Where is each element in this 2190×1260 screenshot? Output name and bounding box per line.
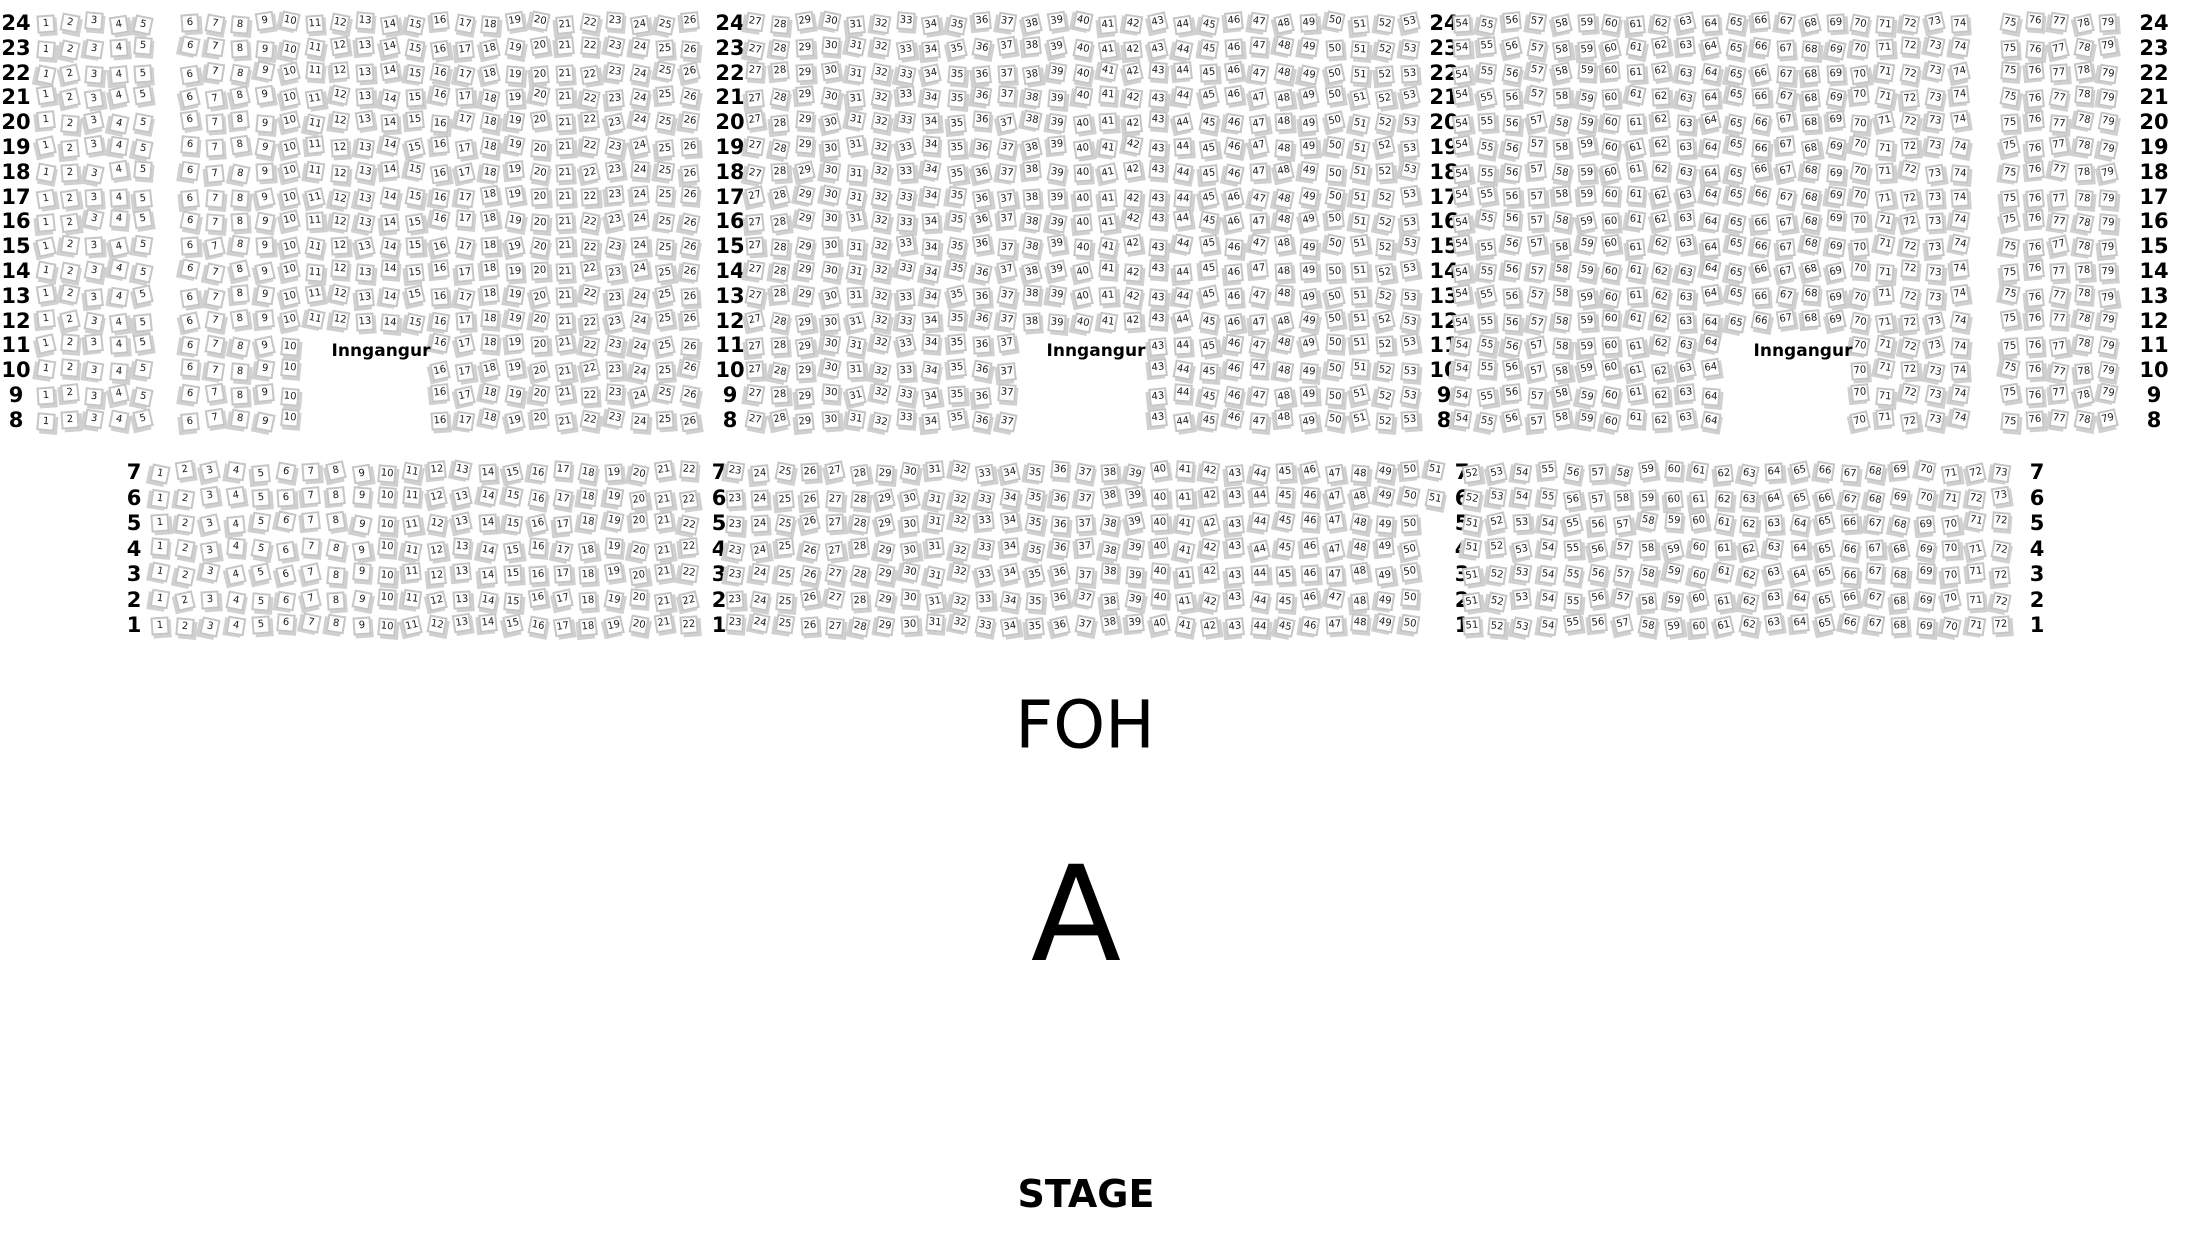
seat[interactable]: 54 xyxy=(1538,514,1559,535)
seat[interactable]: 8 xyxy=(230,386,249,405)
seat[interactable]: 29 xyxy=(795,412,815,432)
seat[interactable]: 63 xyxy=(1738,463,1759,484)
seat[interactable]: 52 xyxy=(1375,335,1394,354)
seat[interactable]: 34 xyxy=(921,212,940,231)
seat[interactable]: 41 xyxy=(1175,460,1195,480)
seat[interactable]: 37 xyxy=(997,163,1018,184)
seat[interactable]: 64 xyxy=(1701,88,1720,107)
seat[interactable]: 77 xyxy=(2048,361,2069,382)
seat[interactable]: 16 xyxy=(528,537,548,557)
seat[interactable]: 11 xyxy=(305,135,325,155)
seat[interactable]: 10 xyxy=(279,87,301,109)
seat[interactable]: 18 xyxy=(479,38,501,60)
seat[interactable]: 38 xyxy=(1022,212,1043,233)
seat[interactable]: 71 xyxy=(1875,189,1896,210)
seat[interactable]: 61 xyxy=(1626,210,1647,231)
seat[interactable]: 48 xyxy=(1274,139,1294,159)
seat[interactable]: 35 xyxy=(1025,617,1045,637)
seat[interactable]: 10 xyxy=(377,566,397,586)
seat[interactable]: 38 xyxy=(1022,36,1042,56)
seat[interactable]: 61 xyxy=(1625,308,1646,329)
seat[interactable]: 29 xyxy=(795,38,814,57)
seat[interactable]: 50 xyxy=(1324,409,1345,430)
seat[interactable]: 77 xyxy=(2049,114,2069,134)
seat[interactable]: 62 xyxy=(1651,160,1671,180)
seat[interactable]: 32 xyxy=(949,591,970,612)
seat[interactable]: 37 xyxy=(996,137,1017,158)
seat[interactable]: 62 xyxy=(1651,334,1672,355)
seat[interactable]: 34 xyxy=(921,311,940,330)
seat[interactable]: 60 xyxy=(1600,261,1621,282)
seat[interactable]: 63 xyxy=(1764,588,1784,608)
seat[interactable]: 29 xyxy=(795,63,814,82)
seat[interactable]: 48 xyxy=(1273,62,1294,83)
seat[interactable]: 26 xyxy=(680,309,700,329)
seat[interactable]: 14 xyxy=(379,88,400,109)
seat[interactable]: 23 xyxy=(725,489,744,508)
seat[interactable]: 71 xyxy=(1966,591,1985,610)
seat[interactable]: 79 xyxy=(2098,64,2119,85)
seat[interactable]: 5 xyxy=(132,138,153,159)
seat[interactable]: 60 xyxy=(1689,511,1710,532)
seat[interactable]: 41 xyxy=(1174,540,1195,561)
seat[interactable]: 55 xyxy=(1477,36,1497,56)
seat[interactable]: 62 xyxy=(1651,87,1670,106)
seat[interactable]: 18 xyxy=(479,382,500,403)
seat[interactable]: 13 xyxy=(452,562,472,582)
seat[interactable]: 35 xyxy=(946,236,967,257)
seat[interactable]: 58 xyxy=(1552,185,1572,205)
seat[interactable]: 3 xyxy=(83,311,104,332)
seat[interactable]: 4 xyxy=(226,616,247,637)
seat[interactable]: 33 xyxy=(896,11,916,31)
seat[interactable]: 69 xyxy=(1826,288,1847,309)
seat[interactable]: 32 xyxy=(949,510,970,531)
seat[interactable]: 37 xyxy=(996,285,1017,306)
seat[interactable]: 71 xyxy=(1874,210,1895,231)
seat[interactable]: 56 xyxy=(1502,88,1521,107)
seat[interactable]: 40 xyxy=(1072,261,1094,283)
seat[interactable]: 26 xyxy=(679,357,700,378)
seat[interactable]: 57 xyxy=(1588,463,1607,482)
seat[interactable]: 14 xyxy=(379,236,400,257)
seat[interactable]: 7 xyxy=(205,164,225,184)
seat[interactable]: 41 xyxy=(1175,488,1194,507)
seat[interactable]: 55 xyxy=(1476,137,1497,158)
seat[interactable]: 74 xyxy=(1950,85,1970,105)
seat[interactable]: 24 xyxy=(629,310,650,331)
seat[interactable]: 28 xyxy=(770,262,791,283)
seat[interactable]: 74 xyxy=(1950,14,1969,33)
seat[interactable]: 28 xyxy=(849,564,870,585)
seat[interactable]: 43 xyxy=(1225,617,1245,637)
seat[interactable]: 9 xyxy=(352,541,373,562)
seat[interactable]: 2 xyxy=(60,189,81,210)
seat[interactable]: 15 xyxy=(503,564,522,583)
seat[interactable]: 49 xyxy=(1299,161,1320,182)
seat[interactable]: 31 xyxy=(845,35,866,56)
seat[interactable]: 19 xyxy=(505,88,524,107)
seat[interactable]: 47 xyxy=(1325,565,1344,584)
seat[interactable]: 30 xyxy=(820,286,842,308)
seat[interactable]: 17 xyxy=(553,564,572,583)
seat[interactable]: 39 xyxy=(1046,162,1067,183)
seat[interactable]: 21 xyxy=(555,163,574,182)
seat[interactable]: 22 xyxy=(580,110,600,130)
seat[interactable]: 15 xyxy=(502,485,523,506)
seat[interactable]: 37 xyxy=(996,112,1018,134)
seat[interactable]: 25 xyxy=(775,614,796,635)
seat[interactable]: 78 xyxy=(2074,85,2094,105)
seat[interactable]: 42 xyxy=(1123,263,1143,283)
seat[interactable]: 58 xyxy=(1552,260,1573,281)
seat[interactable]: 7 xyxy=(204,236,226,258)
seat[interactable]: 8 xyxy=(230,284,250,304)
seat[interactable]: 53 xyxy=(1399,311,1420,332)
seat[interactable]: 27 xyxy=(745,213,765,233)
seat[interactable]: 16 xyxy=(430,135,450,155)
seat[interactable]: 38 xyxy=(1100,562,1120,582)
seat[interactable]: 26 xyxy=(680,287,699,306)
seat[interactable]: 6 xyxy=(276,488,295,507)
seat[interactable]: 61 xyxy=(1625,360,1647,382)
seat[interactable]: 12 xyxy=(329,84,350,105)
seat[interactable]: 11 xyxy=(305,284,326,305)
seat[interactable]: 8 xyxy=(230,39,249,58)
seat[interactable]: 1 xyxy=(150,616,169,635)
seat[interactable]: 39 xyxy=(1047,188,1066,207)
seat[interactable]: 33 xyxy=(895,333,917,355)
seat[interactable]: 61 xyxy=(1626,383,1647,404)
seat[interactable]: 46 xyxy=(1300,486,1320,506)
seat[interactable]: 3 xyxy=(84,11,104,31)
seat[interactable]: 47 xyxy=(1249,386,1270,407)
seat[interactable]: 37 xyxy=(997,85,1017,105)
seat[interactable]: 20 xyxy=(530,261,549,280)
seat[interactable]: 25 xyxy=(655,139,675,159)
seat[interactable]: 76 xyxy=(2025,209,2045,229)
seat[interactable]: 38 xyxy=(1099,513,1120,534)
seat[interactable]: 18 xyxy=(479,358,501,380)
seat[interactable]: 72 xyxy=(1991,566,2011,586)
seat[interactable]: 69 xyxy=(1915,539,1936,560)
seat[interactable]: 63 xyxy=(1676,312,1695,331)
seat[interactable]: 52 xyxy=(1375,361,1396,382)
seat[interactable]: 73 xyxy=(1924,361,1945,382)
seat[interactable]: 71 xyxy=(1965,539,1987,561)
seat[interactable]: 54 xyxy=(1452,38,1471,57)
seat[interactable]: 67 xyxy=(1776,12,1797,33)
seat[interactable]: 54 xyxy=(1452,284,1473,305)
seat[interactable]: 72 xyxy=(1900,137,1919,156)
seat[interactable]: 41 xyxy=(1098,213,1119,234)
seat[interactable]: 37 xyxy=(997,310,1018,331)
seat[interactable]: 46 xyxy=(1223,163,1244,184)
seat[interactable]: 17 xyxy=(455,139,476,160)
seat[interactable]: 19 xyxy=(505,358,526,379)
seat[interactable]: 58 xyxy=(1552,312,1573,333)
seat[interactable]: 69 xyxy=(1890,460,1910,480)
seat[interactable]: 23 xyxy=(604,311,626,333)
seat[interactable]: 24 xyxy=(750,464,770,484)
seat[interactable]: 10 xyxy=(279,39,300,60)
seat[interactable]: 47 xyxy=(1324,587,1345,608)
seat[interactable]: 54 xyxy=(1452,386,1473,407)
seat[interactable]: 44 xyxy=(1250,564,1269,583)
seat[interactable]: 49 xyxy=(1375,591,1396,612)
seat[interactable]: 8 xyxy=(326,486,346,506)
seat[interactable]: 43 xyxy=(1225,537,1245,557)
seat[interactable]: 56 xyxy=(1502,209,1522,229)
seat[interactable]: 77 xyxy=(2049,135,2070,156)
seat[interactable]: 15 xyxy=(404,186,425,207)
seat[interactable]: 42 xyxy=(1200,617,1221,638)
seat[interactable]: 51 xyxy=(1349,113,1370,134)
seat[interactable]: 63 xyxy=(1675,162,1696,183)
seat[interactable]: 18 xyxy=(480,259,500,279)
seat[interactable]: 78 xyxy=(2074,136,2095,157)
seat[interactable]: 38 xyxy=(1022,284,1042,304)
seat[interactable]: 17 xyxy=(454,64,475,85)
seat[interactable]: 45 xyxy=(1274,510,1295,531)
seat[interactable]: 18 xyxy=(577,462,598,483)
seat[interactable]: 71 xyxy=(1875,139,1895,159)
seat[interactable]: 21 xyxy=(654,592,675,613)
seat[interactable]: 56 xyxy=(1502,260,1523,281)
seat[interactable]: 59 xyxy=(1577,288,1598,309)
seat[interactable]: 65 xyxy=(1725,64,1746,85)
seat[interactable]: 69 xyxy=(1825,39,1846,60)
seat[interactable]: 54 xyxy=(1452,135,1473,156)
seat[interactable]: 26 xyxy=(679,86,700,107)
seat[interactable]: 10 xyxy=(279,137,301,159)
seat[interactable]: 39 xyxy=(1047,11,1068,32)
seat[interactable]: 7 xyxy=(205,408,226,429)
seat[interactable]: 41 xyxy=(1098,189,1118,209)
seat[interactable]: 58 xyxy=(1551,61,1573,83)
seat[interactable]: 18 xyxy=(479,88,500,109)
seat[interactable]: 51 xyxy=(1350,212,1371,233)
seat[interactable]: 68 xyxy=(1800,259,1822,281)
seat[interactable]: 65 xyxy=(1814,613,1836,635)
seat[interactable]: 60 xyxy=(1689,538,1710,559)
seat[interactable]: 74 xyxy=(1950,384,1971,405)
seat[interactable]: 49 xyxy=(1298,64,1319,85)
seat[interactable]: 19 xyxy=(505,111,526,132)
seat[interactable]: 7 xyxy=(205,383,226,404)
seat[interactable]: 8 xyxy=(230,309,251,330)
seat[interactable]: 68 xyxy=(1801,113,1820,132)
seat[interactable]: 60 xyxy=(1601,113,1622,134)
seat[interactable]: 60 xyxy=(1600,385,1621,406)
seat[interactable]: 22 xyxy=(580,386,599,405)
seat[interactable]: 9 xyxy=(351,514,372,535)
seat[interactable]: 27 xyxy=(744,39,765,60)
seat[interactable]: 21 xyxy=(555,312,574,331)
seat[interactable]: 44 xyxy=(1173,61,1193,81)
seat[interactable]: 33 xyxy=(896,234,917,255)
seat[interactable]: 51 xyxy=(1350,15,1370,35)
seat[interactable]: 30 xyxy=(821,383,841,403)
seat[interactable]: 75 xyxy=(2000,412,2020,432)
seat[interactable]: 33 xyxy=(975,464,996,485)
seat[interactable]: 53 xyxy=(1400,288,1420,308)
seat[interactable]: 54 xyxy=(1452,65,1473,86)
seat[interactable]: 59 xyxy=(1577,185,1597,205)
seat[interactable]: 57 xyxy=(1527,160,1547,180)
seat[interactable]: 22 xyxy=(678,514,699,535)
seat[interactable]: 13 xyxy=(354,212,375,233)
seat[interactable]: 23 xyxy=(604,334,625,355)
seat[interactable]: 19 xyxy=(604,562,625,583)
seat[interactable]: 14 xyxy=(380,61,401,82)
seat[interactable]: 59 xyxy=(1664,511,1684,531)
seat[interactable]: 53 xyxy=(1512,513,1531,532)
seat[interactable]: 15 xyxy=(404,284,426,306)
seat[interactable]: 73 xyxy=(1925,263,1945,283)
seat[interactable]: 31 xyxy=(925,537,945,557)
seat[interactable]: 16 xyxy=(430,40,451,61)
seat[interactable]: 57 xyxy=(1527,234,1548,255)
seat[interactable]: 63 xyxy=(1676,408,1697,429)
seat[interactable]: 34 xyxy=(921,112,940,131)
seat[interactable]: 72 xyxy=(1991,615,2010,634)
seat[interactable]: 53 xyxy=(1486,462,1508,484)
seat[interactable]: 6 xyxy=(180,236,199,255)
seat[interactable]: 29 xyxy=(795,135,815,155)
seat[interactable]: 30 xyxy=(821,236,840,255)
seat[interactable]: 45 xyxy=(1198,85,1220,107)
seat[interactable]: 72 xyxy=(1900,259,1920,279)
seat[interactable]: 64 xyxy=(1700,62,1721,83)
seat[interactable]: 64 xyxy=(1701,284,1722,305)
seat[interactable]: 10 xyxy=(280,358,300,378)
seat[interactable]: 41 xyxy=(1175,592,1196,613)
seat[interactable]: 51 xyxy=(1350,358,1370,378)
seat[interactable]: 71 xyxy=(1875,284,1895,304)
seat[interactable]: 4 xyxy=(109,209,129,229)
seat[interactable]: 32 xyxy=(870,236,891,257)
seat[interactable]: 69 xyxy=(1916,591,1937,612)
seat[interactable]: 22 xyxy=(580,65,601,86)
seat[interactable]: 54 xyxy=(1538,538,1559,559)
seat[interactable]: 58 xyxy=(1637,510,1658,531)
seat[interactable]: 70 xyxy=(1850,85,1870,105)
seat[interactable]: 38 xyxy=(1021,13,1043,35)
seat[interactable]: 29 xyxy=(795,85,815,105)
seat[interactable]: 71 xyxy=(1875,263,1895,283)
seat[interactable]: 28 xyxy=(850,490,870,510)
seat[interactable]: 61 xyxy=(1626,286,1645,305)
seat[interactable]: 45 xyxy=(1198,14,1219,35)
seat[interactable]: 53 xyxy=(1400,362,1420,382)
seat[interactable]: 16 xyxy=(430,114,450,134)
seat[interactable]: 28 xyxy=(850,464,871,485)
seat[interactable]: 59 xyxy=(1576,386,1597,407)
seat[interactable]: 50 xyxy=(1324,10,1345,31)
seat[interactable]: 45 xyxy=(1198,284,1220,306)
seat[interactable]: 47 xyxy=(1249,313,1269,333)
seat[interactable]: 65 xyxy=(1725,38,1746,59)
seat[interactable]: 61 xyxy=(1689,490,1709,510)
seat[interactable]: 25 xyxy=(774,513,795,534)
seat[interactable]: 15 xyxy=(502,613,524,635)
seat[interactable]: 62 xyxy=(1651,14,1672,35)
seat[interactable]: 78 xyxy=(2073,13,2095,35)
seat[interactable]: 4 xyxy=(226,461,247,482)
seat[interactable]: 45 xyxy=(1199,259,1219,279)
seat[interactable]: 17 xyxy=(552,588,574,610)
seat[interactable]: 34 xyxy=(921,186,942,207)
seat[interactable]: 62 xyxy=(1738,614,1759,635)
seat[interactable]: 69 xyxy=(1826,110,1846,130)
seat[interactable]: 24 xyxy=(750,563,771,584)
seat[interactable]: 66 xyxy=(1750,184,1771,205)
seat[interactable]: 44 xyxy=(1173,263,1193,283)
seat[interactable]: 22 xyxy=(679,615,698,634)
seat[interactable]: 10 xyxy=(377,588,397,608)
seat[interactable]: 68 xyxy=(1801,89,1821,109)
seat[interactable]: 64 xyxy=(1701,138,1722,159)
seat[interactable]: 45 xyxy=(1275,538,1296,559)
seat[interactable]: 17 xyxy=(454,287,475,308)
seat[interactable]: 73 xyxy=(1991,463,2012,484)
seat[interactable]: 36 xyxy=(972,86,993,107)
seat[interactable]: 39 xyxy=(1047,62,1068,83)
seat[interactable]: 45 xyxy=(1275,565,1294,584)
seat[interactable]: 69 xyxy=(1826,13,1845,32)
seat[interactable]: 58 xyxy=(1551,113,1572,134)
seat[interactable]: 7 xyxy=(205,37,226,58)
seat[interactable]: 4 xyxy=(226,537,246,557)
seat[interactable]: 3 xyxy=(84,333,104,353)
seat[interactable]: 34 xyxy=(921,238,941,258)
seat[interactable]: 74 xyxy=(1949,136,1970,157)
seat[interactable]: 71 xyxy=(1875,62,1896,83)
seat[interactable]: 68 xyxy=(1801,161,1822,182)
seat[interactable]: 69 xyxy=(1889,487,1910,508)
seat[interactable]: 38 xyxy=(1100,463,1119,482)
seat[interactable]: 61 xyxy=(1713,512,1734,533)
seat[interactable]: 77 xyxy=(2048,87,2069,108)
seat[interactable]: 32 xyxy=(870,87,891,108)
seat[interactable]: 75 xyxy=(2000,309,2021,330)
seat[interactable]: 53 xyxy=(1400,113,1421,134)
seat[interactable]: 8 xyxy=(229,259,251,281)
seat[interactable]: 27 xyxy=(744,409,765,430)
seat[interactable]: 54 xyxy=(1538,565,1559,586)
seat[interactable]: 28 xyxy=(770,238,790,258)
seat[interactable]: 51 xyxy=(1350,261,1369,280)
seat[interactable]: 33 xyxy=(896,408,916,428)
seat[interactable]: 15 xyxy=(405,263,425,283)
seat[interactable]: 66 xyxy=(1751,11,1771,31)
seat[interactable]: 47 xyxy=(1249,12,1270,33)
seat[interactable]: 35 xyxy=(947,309,967,329)
seat[interactable]: 78 xyxy=(2073,37,2094,58)
seat[interactable]: 30 xyxy=(900,515,920,535)
seat[interactable]: 77 xyxy=(2049,309,2069,329)
seat[interactable]: 46 xyxy=(1224,113,1245,134)
seat[interactable]: 19 xyxy=(505,11,526,32)
seat[interactable]: 36 xyxy=(972,65,992,85)
seat[interactable]: 32 xyxy=(870,111,891,132)
seat[interactable]: 60 xyxy=(1601,185,1621,205)
seat[interactable]: 42 xyxy=(1199,591,1220,612)
seat[interactable]: 27 xyxy=(744,185,766,207)
seat[interactable]: 16 xyxy=(429,360,451,382)
seat[interactable]: 7 xyxy=(301,537,321,557)
